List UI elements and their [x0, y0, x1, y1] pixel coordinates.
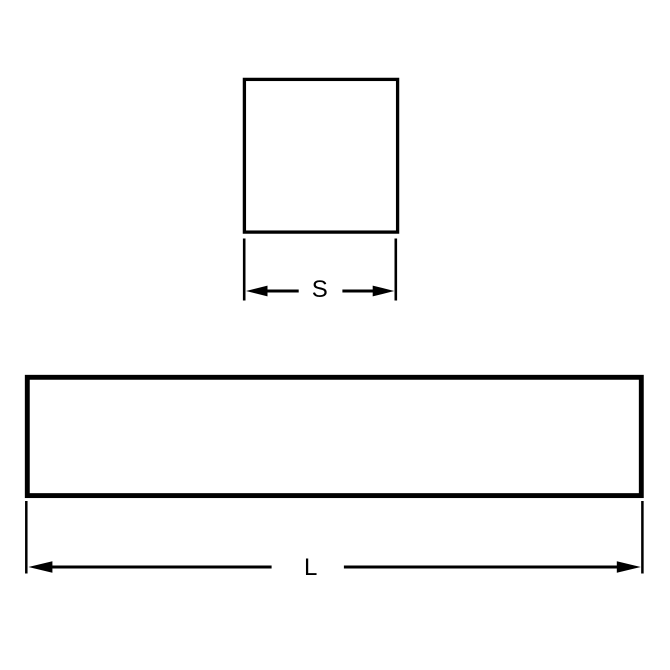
svg-text:L: L [304, 554, 317, 581]
svg-text:S: S [312, 276, 328, 303]
